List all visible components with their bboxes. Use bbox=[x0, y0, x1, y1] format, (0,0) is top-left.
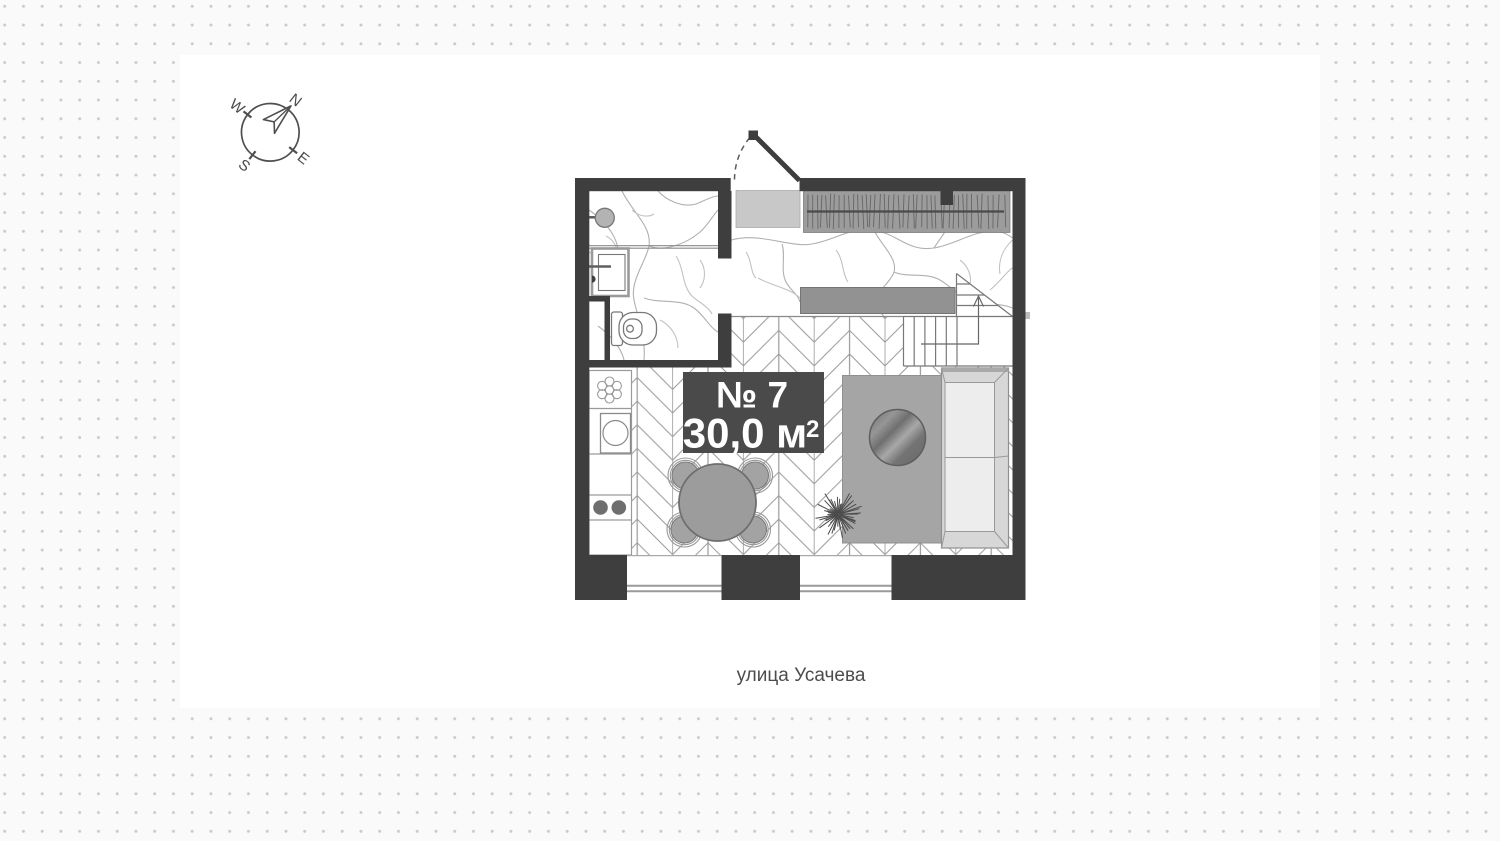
svg-text:2: 2 bbox=[806, 416, 819, 443]
svg-text:улица Усачева: улица Усачева bbox=[737, 665, 866, 686]
svg-text:30,0 м: 30,0 м bbox=[683, 410, 807, 457]
